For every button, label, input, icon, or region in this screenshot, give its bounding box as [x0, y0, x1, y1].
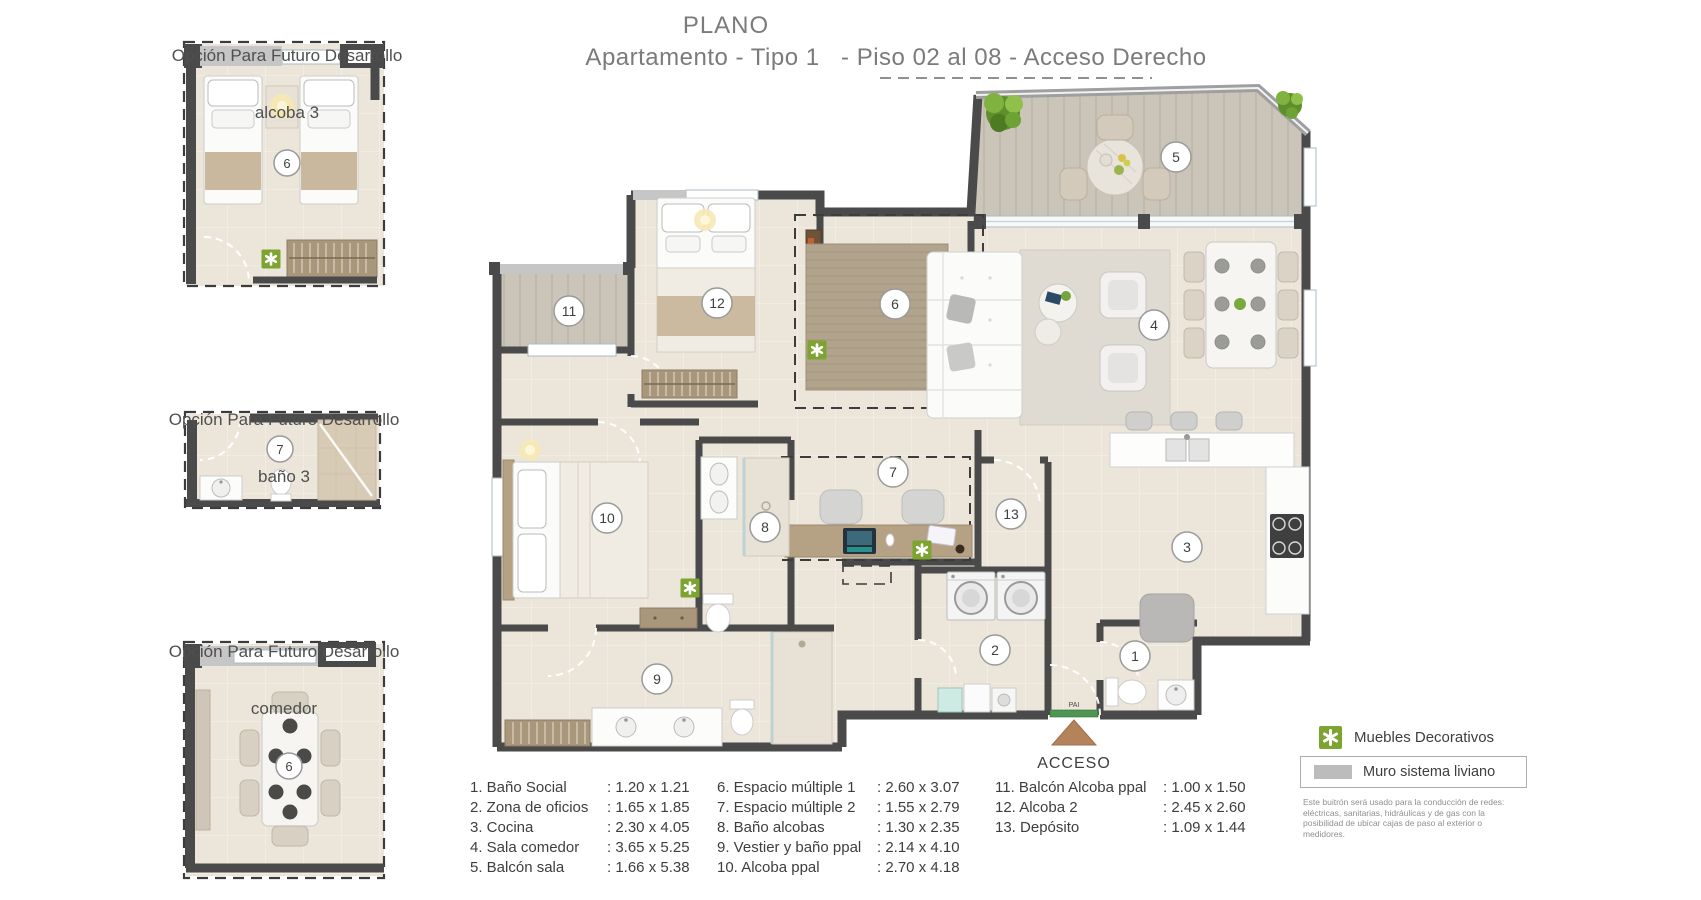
legend-item-name: 3. Cocina: [470, 818, 607, 838]
legend-item: 5. Balcón sala: 1.66 x 5.38: [470, 858, 690, 878]
legend-item-name: 4. Sala comedor: [470, 838, 607, 858]
svg-text:1: 1: [1131, 648, 1139, 664]
legend-item-name: 9. Vestier y baño ppal: [717, 838, 877, 858]
access-arrow-icon: [1052, 720, 1096, 745]
page-subtitle: Apartamento - Tipo 1 - Piso 02 al 08 - A…: [585, 44, 1206, 72]
svg-text:2: 2: [991, 642, 999, 658]
option-title-line1: Opción Para Futuro Desarrollo: [169, 410, 400, 429]
option-title-line2: comedor: [169, 699, 400, 718]
legend-item: 13. Depósito: 1.09 x 1.44: [995, 818, 1246, 838]
oficios-fixtures: [938, 684, 1016, 712]
option-title-bano3: Opción Para Futuro Desarrollo baño 3: [169, 372, 400, 505]
window-wall: [974, 214, 1306, 229]
legend-item: 8. Baño alcobas: 1.30 x 2.35: [717, 818, 960, 838]
muebles-decorativos-icon: [1319, 726, 1342, 749]
legend-item-dimensions: : 3.65 x 5.25: [607, 838, 690, 858]
svg-text:10: 10: [599, 510, 615, 526]
svg-text:11: 11: [562, 303, 577, 319]
muro-legend: Muro sistema liviano: [1300, 756, 1527, 788]
legend-item-dimensions: : 2.14 x 4.10: [877, 838, 960, 858]
room-number-badge: 11: [554, 296, 584, 326]
muro-label: Muro sistema liviano: [1363, 764, 1495, 780]
legend-item: 2. Zona de oficios: 1.65 x 1.85: [470, 798, 690, 818]
buitron-note: Este buitrón será usado para la conducci…: [1303, 797, 1515, 839]
legend-item-name: 12. Alcoba 2: [995, 798, 1163, 818]
legend-item: 6. Espacio múltiple 1: 2.60 x 3.07: [717, 778, 960, 798]
page-title: PLANO: [683, 12, 769, 40]
legend-item-name: 6. Espacio múltiple 1: [717, 778, 877, 798]
muebles-decorativos-legend: Muebles Decorativos: [1319, 726, 1494, 749]
option-title-alcoba3: Opción Para Futuro Desarrollo alcoba 3: [172, 8, 403, 141]
option-title-line1: Opción Para Futuro Desarrollo: [169, 642, 400, 661]
room-number-badge: 10: [592, 503, 622, 533]
room-number-badge: 9: [642, 664, 672, 694]
room-number-badge: 2: [980, 635, 1010, 665]
legend-item-name: 11. Balcón Alcoba ppal: [995, 778, 1163, 798]
svg-text:4: 4: [1150, 317, 1158, 333]
room-number-badge: 6: [274, 150, 300, 176]
room-number-badge: 7: [878, 457, 908, 487]
room-number-badge: 13: [996, 499, 1026, 529]
main-floorplan: PAI ACCESO: [489, 78, 1316, 772]
legend-item-name: 2. Zona de oficios: [470, 798, 607, 818]
muebles-decorativos-marker-icon: [262, 250, 281, 269]
dining-set: [1184, 242, 1298, 368]
legend-item: 3. Cocina: 2.30 x 4.05: [470, 818, 690, 838]
closet-alcoba2: [642, 370, 737, 398]
legend-item-dimensions: : 1.66 x 5.38: [607, 858, 690, 878]
legend-item-name: 7. Espacio múltiple 2: [717, 798, 877, 818]
legend-item-name: 13. Depósito: [995, 818, 1163, 838]
legend-item: 11. Balcón Alcoba ppal: 1.00 x 1.50: [995, 778, 1246, 798]
legend-item: 9. Vestier y baño ppal: 2.14 x 4.10: [717, 838, 960, 858]
access-label: ACCESO: [1037, 755, 1111, 772]
access-entry: [1050, 710, 1098, 745]
option-title-line2: baño 3: [169, 467, 400, 486]
room-number-badge: 5: [1161, 142, 1191, 172]
muebles-decorativos-marker-icon: [913, 541, 932, 560]
svg-text:8: 8: [761, 519, 769, 535]
room-number-badge: 4: [1139, 310, 1169, 340]
legend-column-3: 11. Balcón Alcoba ppal: 1.00 x 1.5012. A…: [995, 778, 1246, 838]
option-title-line1: Opción Para Futuro Desarrollo: [172, 46, 403, 65]
legend-item-dimensions: : 1.30 x 2.35: [877, 818, 960, 838]
svg-text:6: 6: [891, 296, 899, 312]
svg-text:13: 13: [1003, 506, 1019, 522]
legend-item: 1. Baño Social: 1.20 x 1.21: [470, 778, 690, 798]
legend-column-1: 1. Baño Social: 1.20 x 1.212. Zona de of…: [470, 778, 690, 878]
legend-item-dimensions: : 2.30 x 4.05: [607, 818, 690, 838]
room-number-badge: 12: [702, 288, 732, 318]
legend-item-dimensions: : 1.65 x 1.85: [607, 798, 690, 818]
room-number-badge: 6: [276, 753, 302, 779]
legend-item-dimensions: : 1.55 x 2.79: [877, 798, 960, 818]
bed-alcoba2: [657, 198, 755, 352]
legend-item: 4. Sala comedor: 3.65 x 5.25: [470, 838, 690, 858]
svg-text:12: 12: [709, 295, 725, 311]
sala-furniture: [927, 250, 1170, 425]
legend-item: 7. Espacio múltiple 2: 1.55 x 2.79: [717, 798, 960, 818]
legend-item-dimensions: : 1.20 x 1.21: [607, 778, 690, 798]
legend-item: 12. Alcoba 2: 2.45 x 2.60: [995, 798, 1246, 818]
muebles-decorativos-marker-icon: [681, 579, 700, 598]
svg-text:3: 3: [1183, 539, 1191, 555]
room-number-badge: 6: [880, 289, 910, 319]
legend-item-dimensions: : 1.00 x 1.50: [1163, 778, 1246, 798]
legend-item-name: 8. Baño alcobas: [717, 818, 877, 838]
svg-text:6: 6: [285, 759, 292, 774]
svg-text:5: 5: [1172, 149, 1180, 165]
room-number-badge: 3: [1172, 532, 1202, 562]
muebles-decorativos-label: Muebles Decorativos: [1354, 729, 1494, 746]
svg-text:7: 7: [889, 464, 897, 480]
door-threshold-label: PAI: [1069, 702, 1080, 709]
legend-column-2: 6. Espacio múltiple 1: 2.60 x 3.077. Esp…: [717, 778, 960, 878]
floorplan-page: PAI ACCESO: [0, 0, 1701, 900]
option-title-line2: alcoba 3: [172, 103, 403, 122]
room-number-badge: 1: [1120, 641, 1150, 671]
legend-item: 10. Alcoba ppal: 2.70 x 4.18: [717, 858, 960, 878]
legend-item-dimensions: : 2.70 x 4.18: [877, 858, 960, 878]
svg-text:9: 9: [653, 671, 661, 687]
muebles-decorativos-marker-icon: [808, 341, 827, 360]
room-number-badge: 8: [750, 512, 780, 542]
legend-item-name: 1. Baño Social: [470, 778, 607, 798]
legend-item-dimensions: : 2.60 x 3.07: [877, 778, 960, 798]
legend-item-name: 10. Alcoba ppal: [717, 858, 877, 878]
legend-item-dimensions: : 2.45 x 2.60: [1163, 798, 1246, 818]
svg-text:6: 6: [283, 156, 290, 171]
muro-swatch-icon: [1314, 765, 1352, 779]
door-threshold: [1050, 710, 1098, 717]
option-title-comedor: Opción Para Futuro Desarrollo comedor: [169, 604, 400, 737]
legend-item-name: 5. Balcón sala: [470, 858, 607, 878]
legend-item-dimensions: : 1.09 x 1.44: [1163, 818, 1246, 838]
